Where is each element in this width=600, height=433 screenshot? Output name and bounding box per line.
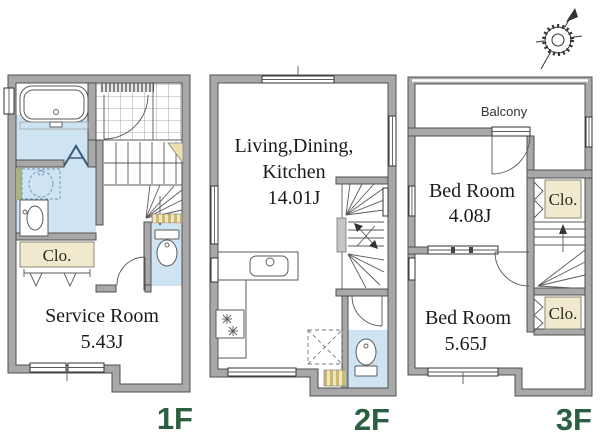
closet-label: Clo. xyxy=(549,190,578,209)
wall xyxy=(96,140,103,225)
toilet-icon-2f xyxy=(355,339,377,376)
north-arrow-icon xyxy=(566,8,578,22)
balcony-door-arc xyxy=(492,127,530,174)
floor-plan-1f: Clo. Service Room 5.43J xyxy=(4,75,190,392)
floor-plan-2f: Living,Dining, Kitchen 14.01J xyxy=(210,66,396,396)
stairs-3f xyxy=(534,222,585,288)
floor-label-1f: 1F xyxy=(157,401,193,433)
floor-plan-3f: Clo. Clo. B xyxy=(408,77,592,396)
room-area: 5.65J xyxy=(445,333,488,355)
closet-label: Clo. xyxy=(43,246,72,265)
room-area: 4.08J xyxy=(449,205,492,227)
wall xyxy=(88,140,96,167)
floor-label-3f: 3F xyxy=(556,402,592,433)
kitchen-counter-icon xyxy=(218,252,298,358)
wall xyxy=(534,329,585,335)
refrigerator-space-icon xyxy=(308,330,342,364)
vanity-sink-icon xyxy=(20,200,48,236)
wall xyxy=(527,178,534,332)
wall xyxy=(336,289,388,296)
room-name: Bed Room xyxy=(429,180,516,202)
step-stripes xyxy=(324,370,346,386)
stairs-1f xyxy=(104,142,182,226)
floorplan-canvas: Clo. Service Room 5.43J 1F xyxy=(0,0,600,433)
room-area: 5.43J xyxy=(81,331,124,353)
wall xyxy=(16,160,64,167)
door-arc xyxy=(352,296,382,326)
wall xyxy=(96,285,116,292)
wall xyxy=(408,247,428,254)
stove-icon xyxy=(216,310,244,338)
wall xyxy=(408,128,492,136)
entrance-porch-hatch xyxy=(100,83,154,92)
room-name-line1: Living,Dining, xyxy=(235,135,354,157)
wall xyxy=(527,170,592,178)
door-arc xyxy=(495,252,529,286)
room-name: Bed Room xyxy=(425,307,512,329)
balcony-label: Balcony xyxy=(481,104,528,119)
wall xyxy=(534,288,585,295)
wall xyxy=(145,285,151,292)
closet-label: Clo. xyxy=(549,304,578,323)
folding-door-icon xyxy=(534,299,543,331)
corner-cabinet-icon xyxy=(168,143,183,163)
floorplan-svg: Clo. Service Room 5.43J 1F xyxy=(0,0,600,433)
room-name-line2: Kitchen xyxy=(262,161,325,183)
toilet-icon-1f xyxy=(155,230,179,266)
stair-landing-stripes xyxy=(152,214,182,223)
outer-walls-3f xyxy=(408,77,592,396)
wall xyxy=(336,177,388,184)
room-name: Service Room xyxy=(45,305,159,327)
folding-door-icon xyxy=(534,182,543,218)
door-arc xyxy=(117,257,145,285)
room-area: 14.01J xyxy=(268,187,321,209)
wall xyxy=(88,83,96,140)
sliding-door-marker xyxy=(428,246,498,254)
closet-1f: Clo. xyxy=(20,242,94,267)
closet-3f-bottom: Clo. xyxy=(534,297,581,331)
hanger-pipe-icon xyxy=(24,269,90,286)
floor-label-2f: 2F xyxy=(354,402,390,433)
stairs-2f xyxy=(337,184,384,289)
closet-3f-top: Clo. xyxy=(534,180,581,218)
stair-direction-arrows xyxy=(354,223,378,249)
compass-icon xyxy=(536,8,582,69)
